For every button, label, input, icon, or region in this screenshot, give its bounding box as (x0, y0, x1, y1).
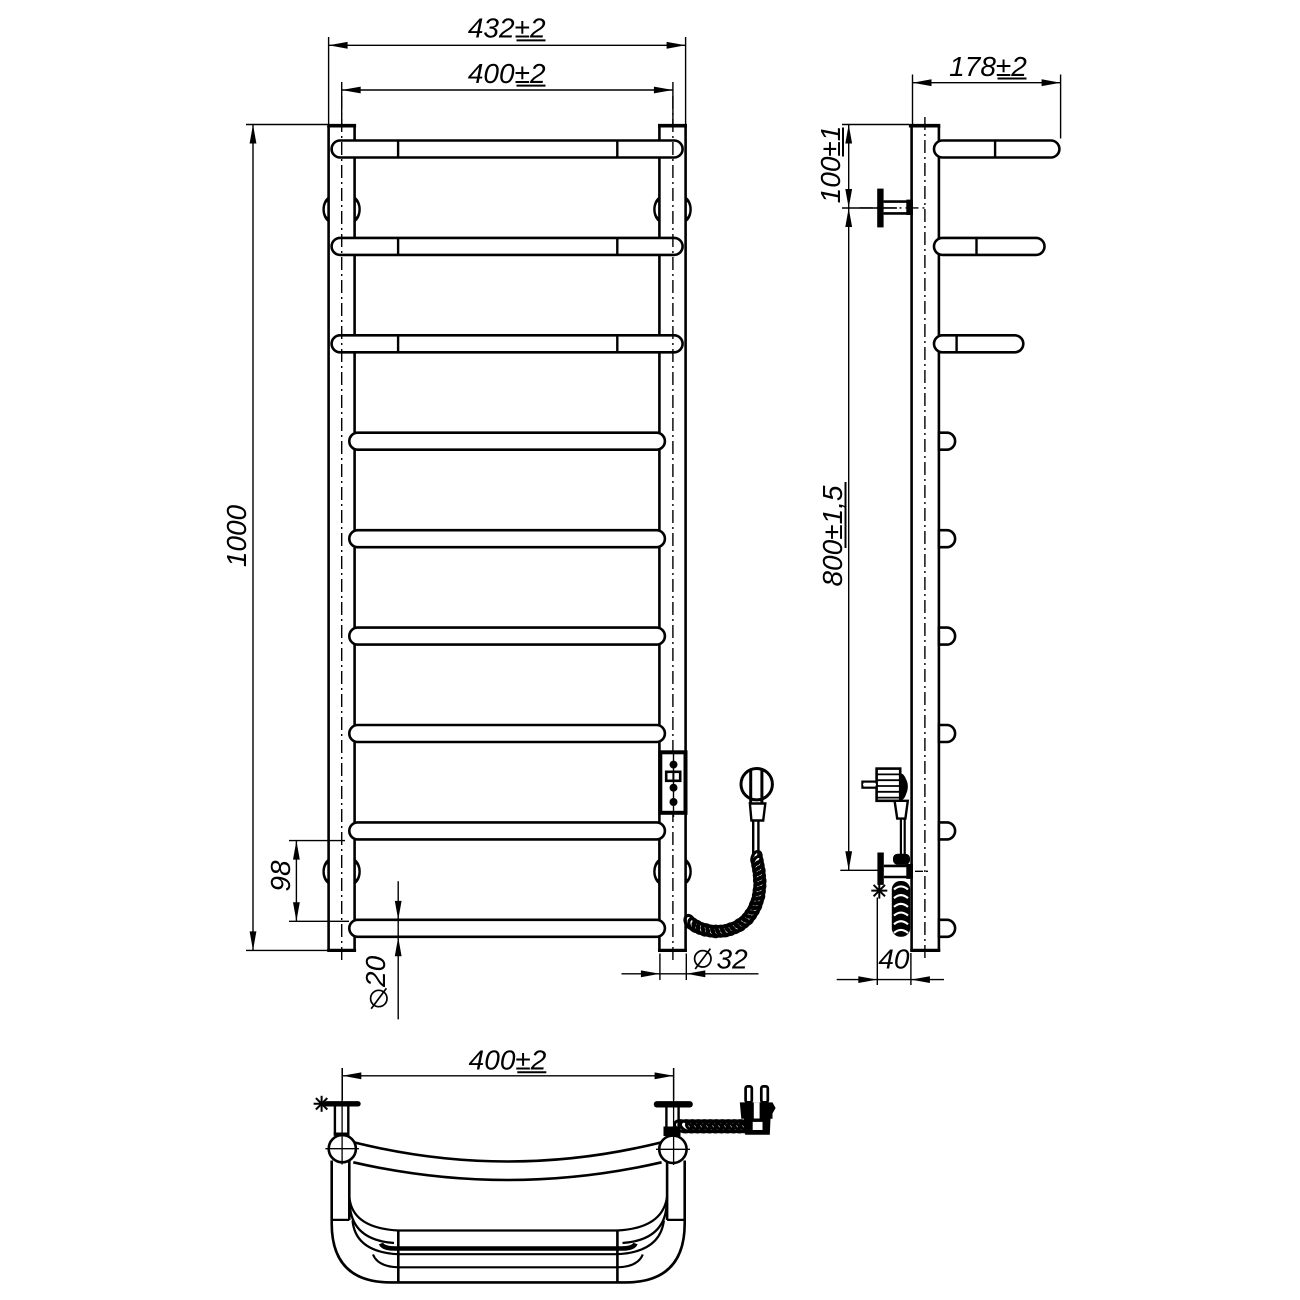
svg-text:400±2: 400±2 (468, 58, 546, 89)
svg-text:178±2: 178±2 (949, 51, 1027, 82)
svg-text:1000: 1000 (221, 504, 252, 567)
svg-text:32: 32 (717, 944, 749, 975)
svg-text:432±2: 432±2 (468, 13, 546, 44)
svg-text:100±1: 100±1 (815, 126, 846, 204)
svg-text:40: 40 (878, 944, 910, 975)
svg-text:20: 20 (360, 955, 391, 988)
svg-text:98: 98 (265, 860, 296, 892)
svg-text:800±1,5: 800±1,5 (817, 485, 848, 586)
svg-text:400±2: 400±2 (469, 1045, 547, 1076)
